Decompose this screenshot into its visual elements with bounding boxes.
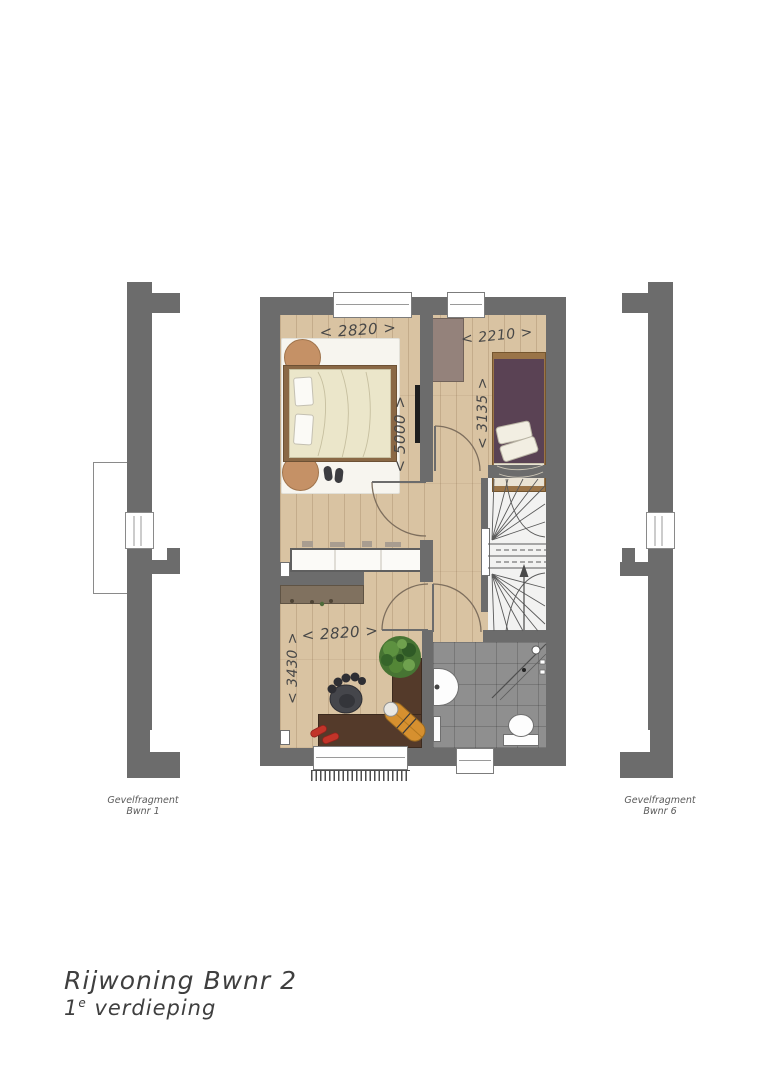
shower-head-icon bbox=[532, 646, 540, 654]
title-line1: Rijwoning Bwnr 2 bbox=[64, 966, 297, 995]
bed-sketch-lines bbox=[318, 370, 543, 477]
stair-direction-arrow bbox=[520, 564, 529, 630]
washbasin-tap-icon bbox=[435, 685, 440, 690]
title-floor-number: 1 bbox=[64, 996, 78, 1020]
floorplan-sheet: Gevelfragment Bwnr 1 Gevelfragment Bwnr … bbox=[0, 0, 764, 1080]
sideboard-decor bbox=[290, 599, 333, 606]
door-bedroom1 bbox=[372, 482, 426, 536]
staircase-treads bbox=[488, 479, 546, 631]
door-study bbox=[382, 584, 428, 630]
fragment-window-mullions bbox=[134, 516, 662, 546]
lineart-overlay bbox=[0, 0, 764, 1080]
plant bbox=[379, 636, 421, 678]
dim-study-depth: < 3430 > bbox=[285, 620, 301, 716]
shower-drain-icon bbox=[522, 668, 526, 672]
door-bathroom bbox=[433, 584, 481, 632]
title-floor-sup: e bbox=[78, 996, 86, 1010]
pillow bbox=[496, 421, 539, 463]
shower bbox=[492, 644, 546, 700]
title-floor-word: verdieping bbox=[94, 996, 216, 1020]
slippers bbox=[323, 466, 344, 484]
office-chair bbox=[328, 673, 367, 714]
sheet-title: Rijwoning Bwnr 2 1e verdieping bbox=[64, 966, 297, 1020]
duffel-bag bbox=[379, 697, 429, 745]
door-bedroom2 bbox=[435, 426, 480, 471]
dim-bedroom2-depth: < 3135 > bbox=[475, 365, 491, 461]
dim-bedroom1-depth: < 5000 > bbox=[391, 386, 409, 482]
shoes bbox=[310, 724, 340, 745]
wardrobe-dividers bbox=[335, 550, 381, 570]
title-line2: 1e verdieping bbox=[64, 996, 297, 1020]
